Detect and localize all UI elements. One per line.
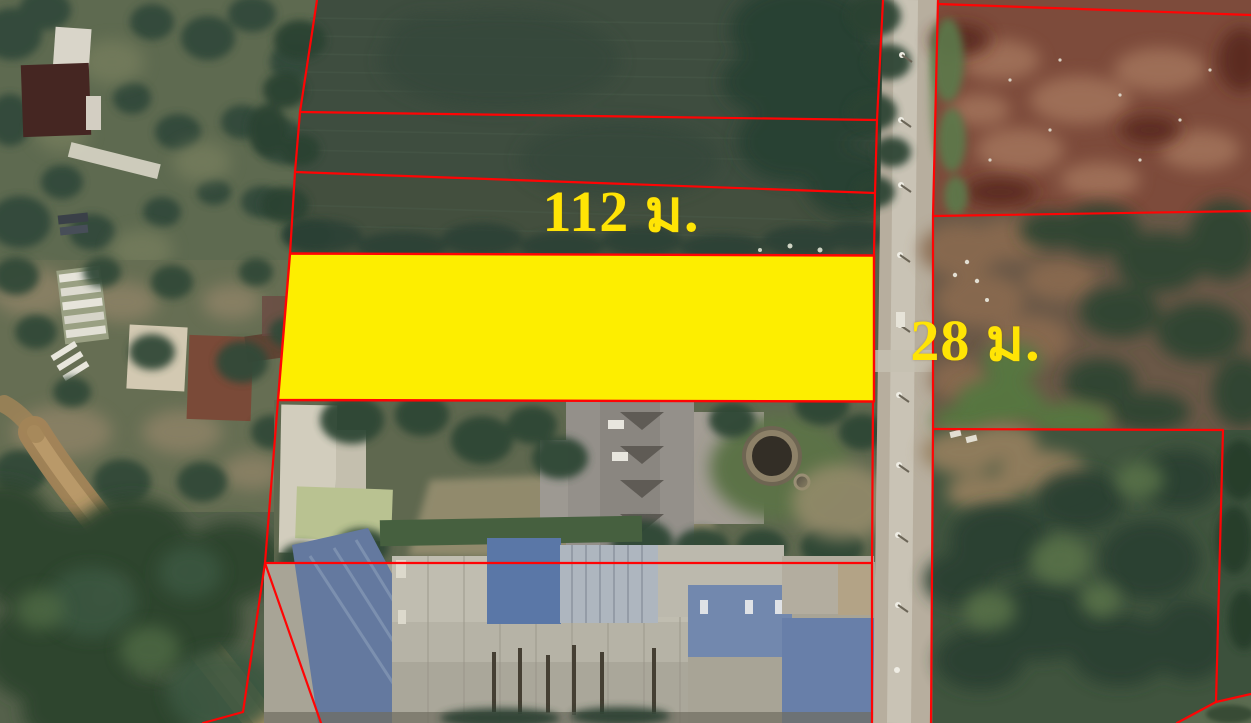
highlighted-plot xyxy=(278,254,874,402)
brown-roof-house xyxy=(21,63,91,137)
satellite-map: 112 ม. 28 ม. xyxy=(0,0,1251,723)
depth-label: 28 ม. xyxy=(893,312,1058,370)
green-parcel xyxy=(922,424,1230,723)
blue-roof-c xyxy=(782,618,874,723)
ribbed-roof xyxy=(560,545,658,623)
blue-roof-a xyxy=(487,538,561,624)
plowed-field xyxy=(930,0,1251,216)
satellite-scene xyxy=(0,0,1251,723)
blue-roof-b xyxy=(688,585,792,657)
warehouse-complex xyxy=(264,516,875,723)
width-label: 112 ม. xyxy=(516,183,726,241)
